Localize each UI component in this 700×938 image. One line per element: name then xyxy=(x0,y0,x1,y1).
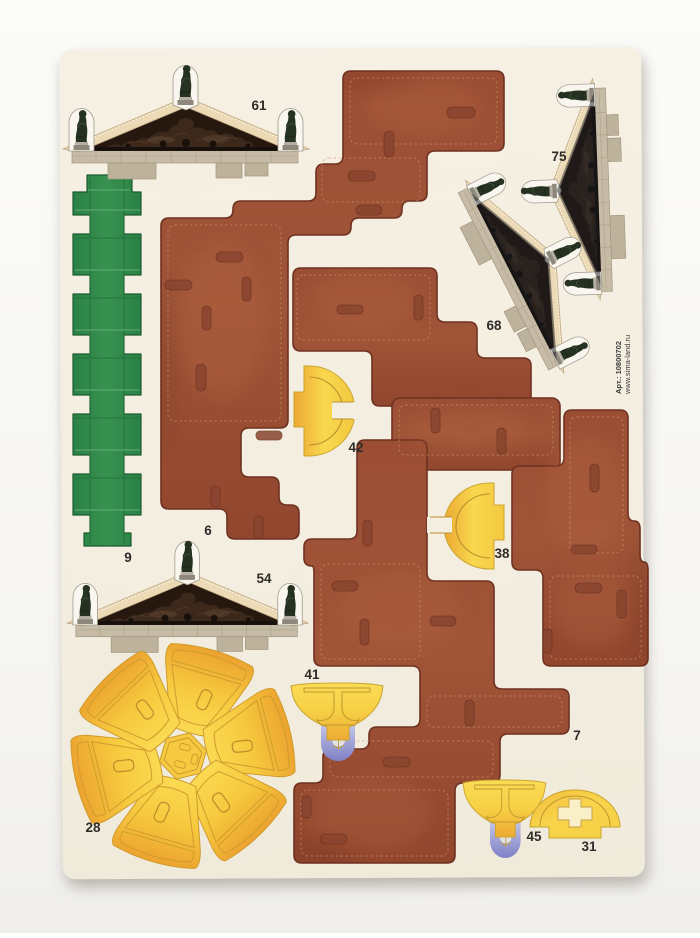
svg-text:7: 7 xyxy=(573,728,581,743)
svg-text:9: 9 xyxy=(124,550,132,565)
svg-text:www.sima-land.ru: www.sima-land.ru xyxy=(623,335,632,395)
svg-text:54: 54 xyxy=(256,571,272,586)
svg-text:45: 45 xyxy=(526,829,542,844)
svg-text:38: 38 xyxy=(494,546,510,561)
svg-text:28: 28 xyxy=(85,820,101,835)
svg-text:Арт.: 10800702: Арт.: 10800702 xyxy=(614,341,623,394)
svg-text:42: 42 xyxy=(348,440,363,455)
svg-text:75: 75 xyxy=(551,149,567,164)
svg-text:41: 41 xyxy=(304,667,320,682)
svg-text:68: 68 xyxy=(486,318,502,333)
svg-text:61: 61 xyxy=(251,98,267,113)
svg-text:6: 6 xyxy=(204,523,212,538)
svg-text:31: 31 xyxy=(581,839,597,854)
